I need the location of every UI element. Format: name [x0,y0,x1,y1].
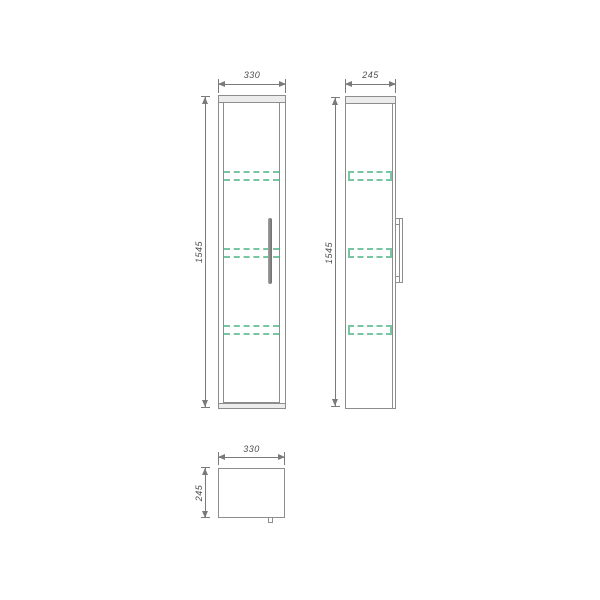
side-width-label: 245 [345,69,396,81]
side-view-top-panel [345,96,396,104]
top-view-outline [218,468,285,518]
top-width-label: 330 [218,443,285,455]
dim-arrow [279,81,286,87]
dim-arrow [345,81,352,87]
shelf-line [348,171,392,181]
dim-arrow [332,399,338,406]
shelf-line [224,171,279,181]
dim-arrow [202,400,208,407]
dim-line [335,98,336,407]
dim-arrow [202,511,208,518]
side-view-door-line [392,104,393,409]
dim-arrow [202,97,208,104]
handle-bar-profile [399,218,403,283]
dim-line [205,97,206,407]
cabinet-technical-drawing: 330 1545 245 1545 [0,0,600,600]
dim-line [218,84,286,85]
door-handle-front [268,218,272,284]
dim-extension [331,406,340,407]
shelf-line [224,325,279,335]
shelf-line [348,248,392,258]
front-width-label: 330 [218,69,286,81]
dim-extension [201,407,210,408]
shelf-line [348,325,392,335]
dim-arrow [202,468,208,475]
front-view-bottom-panel [218,403,286,409]
front-height-label: 1545 [193,235,205,269]
top-depth-label: 245 [193,476,205,510]
dim-arrow [389,81,396,87]
door-handle-top [268,517,273,523]
dim-line [218,457,285,458]
dim-arrow [218,81,225,87]
dim-arrow [332,98,338,105]
side-height-label: 1545 [323,236,335,270]
